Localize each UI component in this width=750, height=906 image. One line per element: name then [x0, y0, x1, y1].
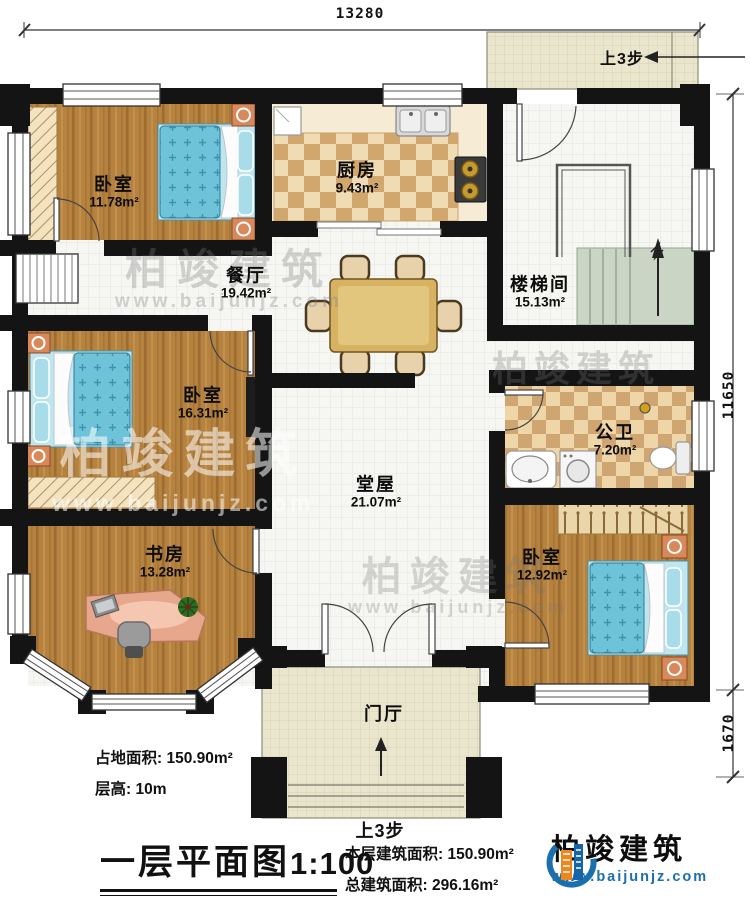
- floor-height-value: 10m: [135, 781, 166, 798]
- floor-height-label: 层高:: [95, 781, 131, 798]
- bath-sink-icon: [506, 451, 556, 488]
- bed-icon: [30, 351, 132, 447]
- fridge-icon: [274, 107, 301, 135]
- site-area-value: 150.90m²: [166, 750, 232, 767]
- plant-icon: [178, 597, 198, 617]
- total-area-value: 296.16m²: [432, 877, 498, 894]
- porch-top-floor: [487, 32, 698, 89]
- stove-icon: [455, 157, 486, 202]
- window-icon: [92, 694, 196, 710]
- logo-mark-icon: [543, 836, 597, 894]
- dimension-right-porch: 1670: [721, 714, 737, 753]
- title-underline-thin: [100, 895, 337, 896]
- site-info: 占地面积: 150.90m² 层高: 10m: [95, 746, 233, 808]
- window-icon: [8, 133, 30, 235]
- bay-window-icon: [16, 254, 78, 303]
- window-icon: [8, 391, 30, 443]
- light-fixture-icon: [640, 403, 650, 413]
- dimension-top-width: 13280: [336, 6, 385, 22]
- bed-icon: [588, 561, 688, 655]
- total-area-label: 总建筑面积:: [345, 877, 428, 894]
- wardrobe-icon: [28, 107, 57, 241]
- wardrobe-icon: [558, 504, 688, 534]
- area-info: 本层建筑面积: 150.90m² 总建筑面积: 296.16m²: [345, 842, 514, 904]
- this-floor-area-label: 本层建筑面积:: [345, 846, 443, 863]
- wardrobe-icon: [28, 477, 155, 508]
- this-floor-area-value: 150.90m²: [447, 846, 513, 863]
- window-icon: [692, 401, 714, 471]
- window-icon: [535, 684, 649, 704]
- window-icon: [383, 84, 462, 106]
- plan-title: 一层平面图: [100, 843, 290, 882]
- sink-icon: [396, 105, 450, 136]
- tv-icon: [246, 377, 255, 437]
- title-underline: [100, 889, 337, 892]
- window-icon: [63, 84, 160, 106]
- plan-title-block: 一层平面图1:100: [100, 834, 374, 896]
- company-logo: 柏竣建筑 www.baijunjz.com: [543, 836, 708, 885]
- bed-icon: [158, 124, 255, 220]
- site-area-label: 占地面积:: [95, 750, 162, 767]
- stair-landing: [577, 248, 694, 325]
- floor-plan-page: 柏竣建筑 www.baijunjz.com 柏竣建筑 www.baijunjz.…: [0, 0, 750, 906]
- window-icon: [692, 169, 714, 251]
- washing-machine-icon: [560, 451, 596, 488]
- steps-label-top: 上3步: [600, 45, 644, 69]
- dimension-right-height: 11650: [721, 371, 737, 420]
- window-icon: [8, 574, 30, 634]
